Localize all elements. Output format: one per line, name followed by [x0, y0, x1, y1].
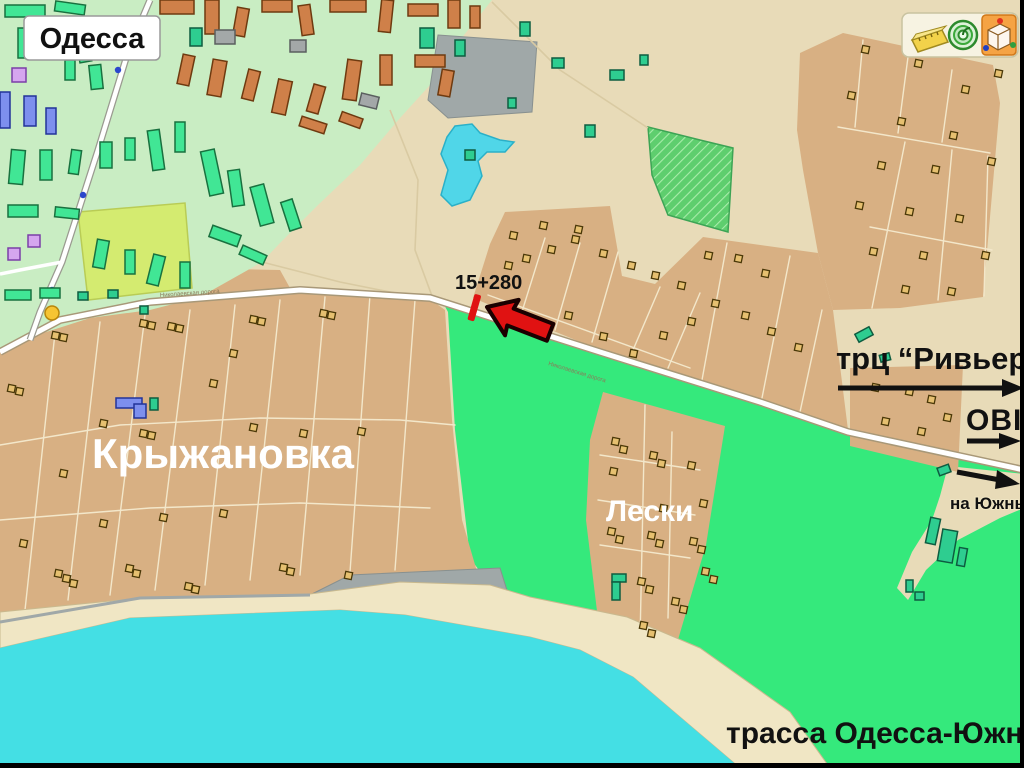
building [190, 28, 202, 46]
building [415, 55, 445, 67]
house-symbol [949, 131, 957, 139]
house-symbol [627, 261, 635, 269]
building [205, 0, 219, 34]
label-trassa: трасса Одесса-Южный [726, 717, 1024, 750]
house-symbol [794, 343, 802, 351]
building [465, 150, 475, 160]
house-symbol [687, 461, 695, 469]
house-symbol [629, 349, 637, 357]
building [125, 138, 135, 160]
house-symbol [961, 85, 969, 93]
building [0, 92, 10, 128]
house-symbol [357, 427, 365, 435]
house-symbol [869, 247, 877, 255]
building [915, 592, 924, 600]
building [8, 205, 38, 217]
building [40, 288, 60, 298]
building [134, 404, 146, 418]
house-symbol [574, 225, 582, 233]
building [408, 4, 438, 16]
house-symbol [257, 317, 265, 325]
building [378, 0, 393, 33]
house-symbol [564, 311, 572, 319]
house-symbol [539, 221, 547, 229]
house-symbol [509, 231, 517, 239]
label-chainage: 15+280 [455, 272, 522, 294]
building [520, 22, 530, 36]
house-symbol [132, 569, 140, 577]
building [215, 30, 235, 44]
house-symbol [741, 311, 749, 319]
building [24, 96, 36, 126]
building [180, 262, 190, 288]
building [8, 248, 20, 260]
house-symbol [659, 331, 667, 339]
building [262, 0, 292, 12]
house-symbol [671, 597, 679, 605]
house-symbol [947, 287, 955, 295]
building [9, 149, 26, 184]
building [160, 0, 194, 14]
house-symbol [647, 629, 655, 637]
house-symbol [611, 437, 619, 445]
house-symbol [677, 281, 685, 289]
house-symbol [711, 299, 719, 307]
building [612, 574, 626, 582]
building [640, 55, 648, 65]
house-symbol [699, 499, 707, 507]
building [290, 40, 306, 52]
house-symbol [639, 621, 647, 629]
house-symbol [51, 331, 59, 339]
building [108, 290, 118, 298]
house-symbol [125, 564, 133, 572]
house-symbol [159, 513, 167, 521]
building [5, 290, 31, 300]
house-symbol [931, 165, 939, 173]
house-symbol [191, 585, 199, 593]
house-symbol [139, 319, 147, 327]
house-symbol [914, 59, 922, 67]
frame-right [1020, 0, 1024, 768]
building [420, 28, 434, 48]
house-symbol [286, 567, 294, 575]
city-badge: Одесса [24, 16, 160, 60]
house-symbol [919, 251, 927, 259]
house-symbol [619, 445, 627, 453]
building [470, 6, 480, 28]
house-symbol [571, 235, 579, 243]
house-symbol [697, 545, 705, 553]
house-symbol [647, 531, 655, 539]
label-leski: Лески [606, 495, 693, 528]
building [28, 235, 40, 247]
map-viewport[interactable]: Николаевская дорога Николаевская дорога … [0, 0, 1024, 768]
house-symbol [69, 579, 77, 587]
house-symbol [504, 261, 512, 269]
frame-bottom [0, 763, 1024, 768]
house-symbol [344, 571, 352, 579]
building [585, 125, 595, 137]
house-symbol [651, 271, 659, 279]
house-symbol [649, 451, 657, 459]
house-symbol [955, 214, 963, 222]
house-symbol [99, 419, 107, 427]
house-symbol [687, 317, 695, 325]
building [380, 55, 392, 85]
building [906, 580, 913, 592]
house-symbol [147, 321, 155, 329]
house-symbol [709, 575, 717, 583]
house-symbol [19, 539, 27, 547]
house-symbol [847, 91, 855, 99]
building [330, 0, 366, 12]
map-toolbar [902, 13, 1018, 57]
house-symbol [981, 251, 989, 259]
house-symbol [877, 161, 885, 169]
house-symbol [54, 569, 62, 577]
house-symbol [59, 469, 67, 477]
house-symbol [679, 605, 687, 613]
house-symbol [861, 45, 869, 53]
city-badge-label: Одесса [40, 23, 146, 55]
label-obi: OBI [966, 404, 1022, 437]
house-symbol [701, 567, 709, 575]
house-symbol [689, 537, 697, 545]
junction-poi [45, 306, 59, 320]
house-symbol [734, 254, 742, 262]
house-symbol [767, 327, 775, 335]
house-symbol [209, 379, 217, 387]
building [175, 122, 185, 152]
house-symbol [901, 285, 909, 293]
label-kryzhanovka: Крыжановка [92, 430, 355, 477]
building [100, 142, 112, 168]
label-na-yuzhny: на Южный [950, 494, 1024, 513]
house-symbol [615, 535, 623, 543]
house-symbol [167, 322, 175, 330]
house-symbol [609, 467, 617, 475]
building [46, 108, 56, 134]
building [40, 150, 52, 180]
house-symbol [917, 427, 925, 435]
building [12, 68, 26, 82]
house-symbol [59, 333, 67, 341]
house-symbol [522, 254, 530, 262]
building [5, 5, 45, 17]
house-symbol [229, 349, 237, 357]
house-symbol [99, 519, 107, 527]
house-symbol [657, 459, 665, 467]
building [78, 292, 88, 300]
building [455, 40, 465, 56]
building [150, 398, 158, 410]
house-symbol [547, 245, 555, 253]
house-symbol [219, 509, 227, 517]
house-symbol [599, 332, 607, 340]
house-symbol [637, 577, 645, 585]
cube-3d-icon[interactable] [982, 15, 1016, 55]
house-symbol [15, 387, 23, 395]
house-symbol [655, 539, 663, 547]
building [612, 582, 620, 600]
house-symbol [905, 207, 913, 215]
house-symbol [704, 251, 712, 259]
house-symbol [987, 157, 995, 165]
house-symbol [249, 315, 257, 323]
house-symbol [319, 309, 327, 317]
house-symbol [927, 395, 935, 403]
building [508, 98, 516, 108]
house-symbol [943, 413, 951, 421]
target-icon[interactable] [949, 21, 977, 49]
house-symbol [175, 324, 183, 332]
building [55, 207, 80, 219]
house-symbol [607, 527, 615, 535]
house-symbol [279, 563, 287, 571]
map-canvas[interactable]: Николаевская дорога Николаевская дорога … [0, 0, 1024, 768]
house-symbol [761, 269, 769, 277]
house-symbol [7, 384, 15, 392]
house-symbol [327, 311, 335, 319]
label-riviera: трц “Ривьера” [836, 341, 1024, 376]
building [65, 60, 75, 80]
building [89, 64, 103, 89]
house-symbol [645, 585, 653, 593]
house-symbol [855, 201, 863, 209]
building [610, 70, 624, 80]
house-symbol [62, 574, 70, 582]
building [140, 306, 148, 314]
house-symbol [897, 117, 905, 125]
house-symbol [881, 417, 889, 425]
house-symbol [994, 69, 1002, 77]
building [552, 58, 564, 68]
building [448, 0, 460, 28]
house-symbol [599, 249, 607, 257]
building [125, 250, 135, 274]
